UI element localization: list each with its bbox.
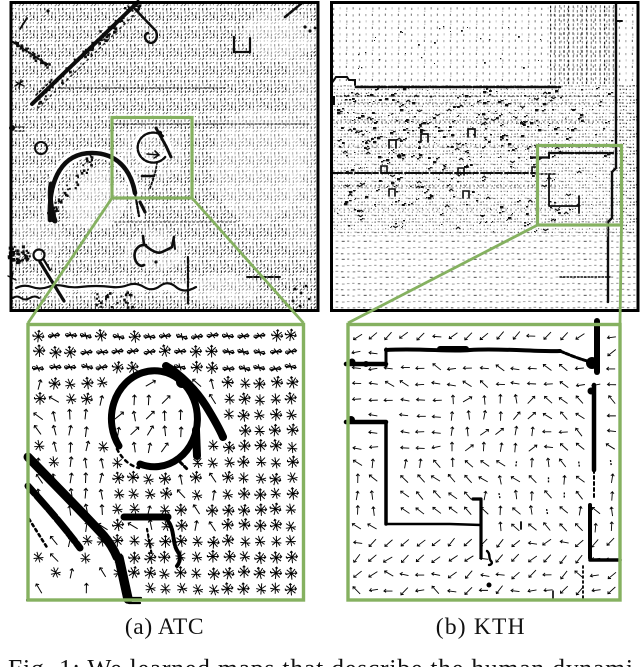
svg-text:(b) KTH: (b) KTH — [436, 614, 526, 640]
svg-text:Fig. 1: We learned maps that d: Fig. 1: We learned maps that describe th… — [8, 654, 633, 667]
svg-text:(a) ATC: (a) ATC — [125, 614, 204, 640]
